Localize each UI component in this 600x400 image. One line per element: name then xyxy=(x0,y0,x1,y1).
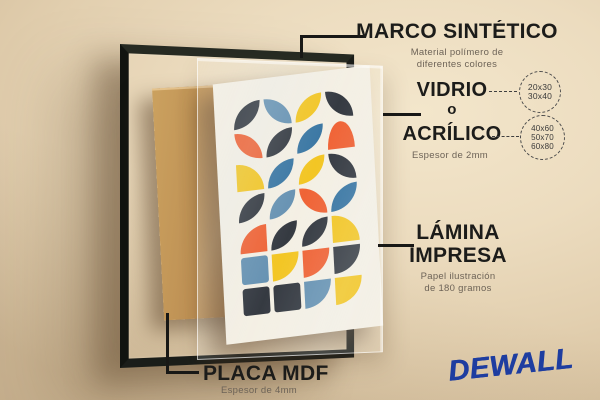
marco-title: MARCO SINTÉTICO xyxy=(352,20,562,44)
lamina-description-line2: de 180 gramos xyxy=(424,283,491,294)
vidrio-connector-line xyxy=(383,113,421,116)
marco-description-line1: Material polímero de xyxy=(411,47,504,58)
placa-connector-horizontal xyxy=(166,371,199,374)
size-label: 30x40 xyxy=(528,92,552,102)
acrilico-dash-connector xyxy=(492,136,519,137)
size-label: 40x60 xyxy=(531,124,554,133)
size-circle-small: 20x3030x40 xyxy=(519,71,561,113)
marco-connector-vertical xyxy=(300,37,303,58)
placa-title: PLACA MDF xyxy=(203,362,329,386)
glass-pane xyxy=(197,58,383,360)
vidrio-description: Espesor de 2mm xyxy=(394,150,506,162)
lamina-description-line1: Papel ilustración xyxy=(421,271,496,282)
lamina-title-line1: LÁMINA xyxy=(398,221,518,245)
marco-description: Material polímero de diferentes colores xyxy=(390,47,524,70)
placa-description: Espesor de 4mm xyxy=(204,385,314,397)
size-label: 50x70 xyxy=(531,133,554,142)
lamina-description: Papel ilustración de 180 gramos xyxy=(398,271,518,294)
size-circle-large: 40x6050x7060x80 xyxy=(520,115,565,160)
vidrio-dash-connector xyxy=(489,91,517,92)
lamina-title-line2: IMPRESA xyxy=(398,244,518,268)
infographic-scene: MARCO SINTÉTICO Material polímero de dif… xyxy=(0,0,600,400)
size-label: 60x80 xyxy=(531,142,554,151)
marco-description-line2: diferentes colores xyxy=(417,59,497,70)
placa-connector-vertical xyxy=(166,313,169,374)
acrilico-title: ACRÍLICO xyxy=(394,123,510,146)
vidrio-title: VIDRIO xyxy=(402,79,502,102)
